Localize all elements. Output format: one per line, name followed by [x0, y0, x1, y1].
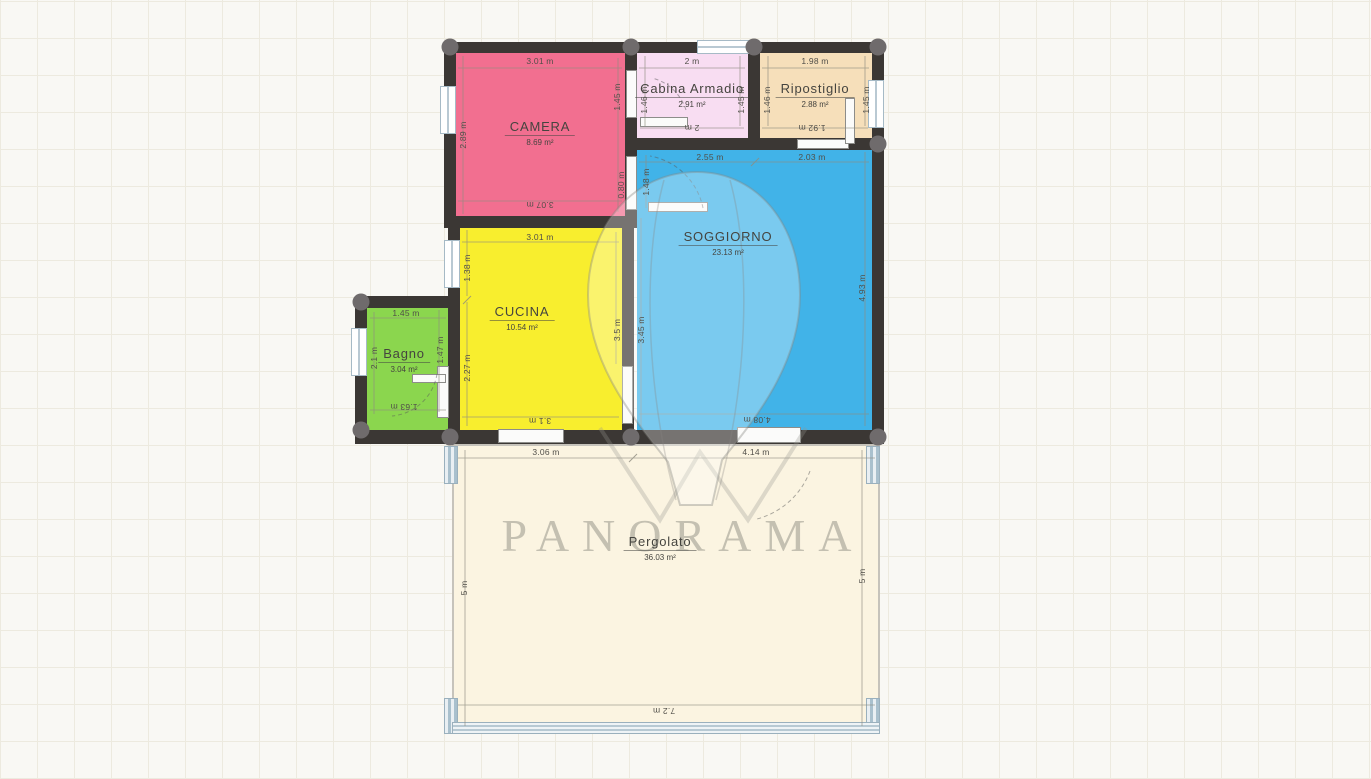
- door-soggiorno-left: [648, 202, 708, 212]
- column: [353, 294, 370, 311]
- wall-cabina-ripostiglio: [748, 42, 760, 150]
- window-cucina-left: [444, 240, 460, 288]
- window-camera-left: [440, 86, 456, 134]
- room-bagno: [367, 308, 448, 430]
- column: [442, 39, 459, 56]
- window-ripostiglio-right: [868, 80, 884, 128]
- wall-bagno-top: [355, 296, 460, 308]
- door-cucina-soggiorno: [622, 366, 633, 424]
- column: [623, 39, 640, 56]
- room-ripostiglio: [760, 53, 872, 138]
- wall-bottom: [355, 430, 884, 444]
- pergola-post: [444, 446, 458, 484]
- room-cucina: [460, 228, 622, 430]
- pergola-beam: [452, 722, 880, 734]
- column: [870, 136, 887, 153]
- door-ripostiglio: [845, 98, 855, 144]
- door-bagno-shelf: [412, 374, 446, 383]
- door-camera-soggiorno: [626, 156, 637, 210]
- column: [353, 422, 370, 439]
- door-camera-cabina: [626, 70, 637, 118]
- door-cucina-pergolato: [498, 429, 564, 443]
- wall-top: [444, 42, 884, 53]
- column: [623, 429, 640, 446]
- wall-bagno-right: [448, 296, 460, 436]
- door-cabina: [640, 117, 688, 127]
- window-top: [697, 40, 751, 54]
- floor-plan: PANORAMA CAMERA 8.69 m² Cabina Armadio 2…: [0, 0, 1371, 779]
- room-camera: [456, 53, 625, 216]
- pergola-post: [866, 446, 880, 484]
- wall-left-upper: [444, 42, 456, 228]
- column: [746, 39, 763, 56]
- column: [442, 429, 459, 446]
- room-pergolato: [452, 444, 880, 734]
- room-soggiorno: [637, 150, 872, 430]
- door-soggiorno-ripostiglio: [797, 139, 849, 149]
- column: [870, 429, 887, 446]
- wall-camera-bottom: [444, 216, 634, 228]
- door-soggiorno-pergolato: [737, 427, 801, 443]
- column: [870, 39, 887, 56]
- window-bagno-left: [351, 328, 367, 376]
